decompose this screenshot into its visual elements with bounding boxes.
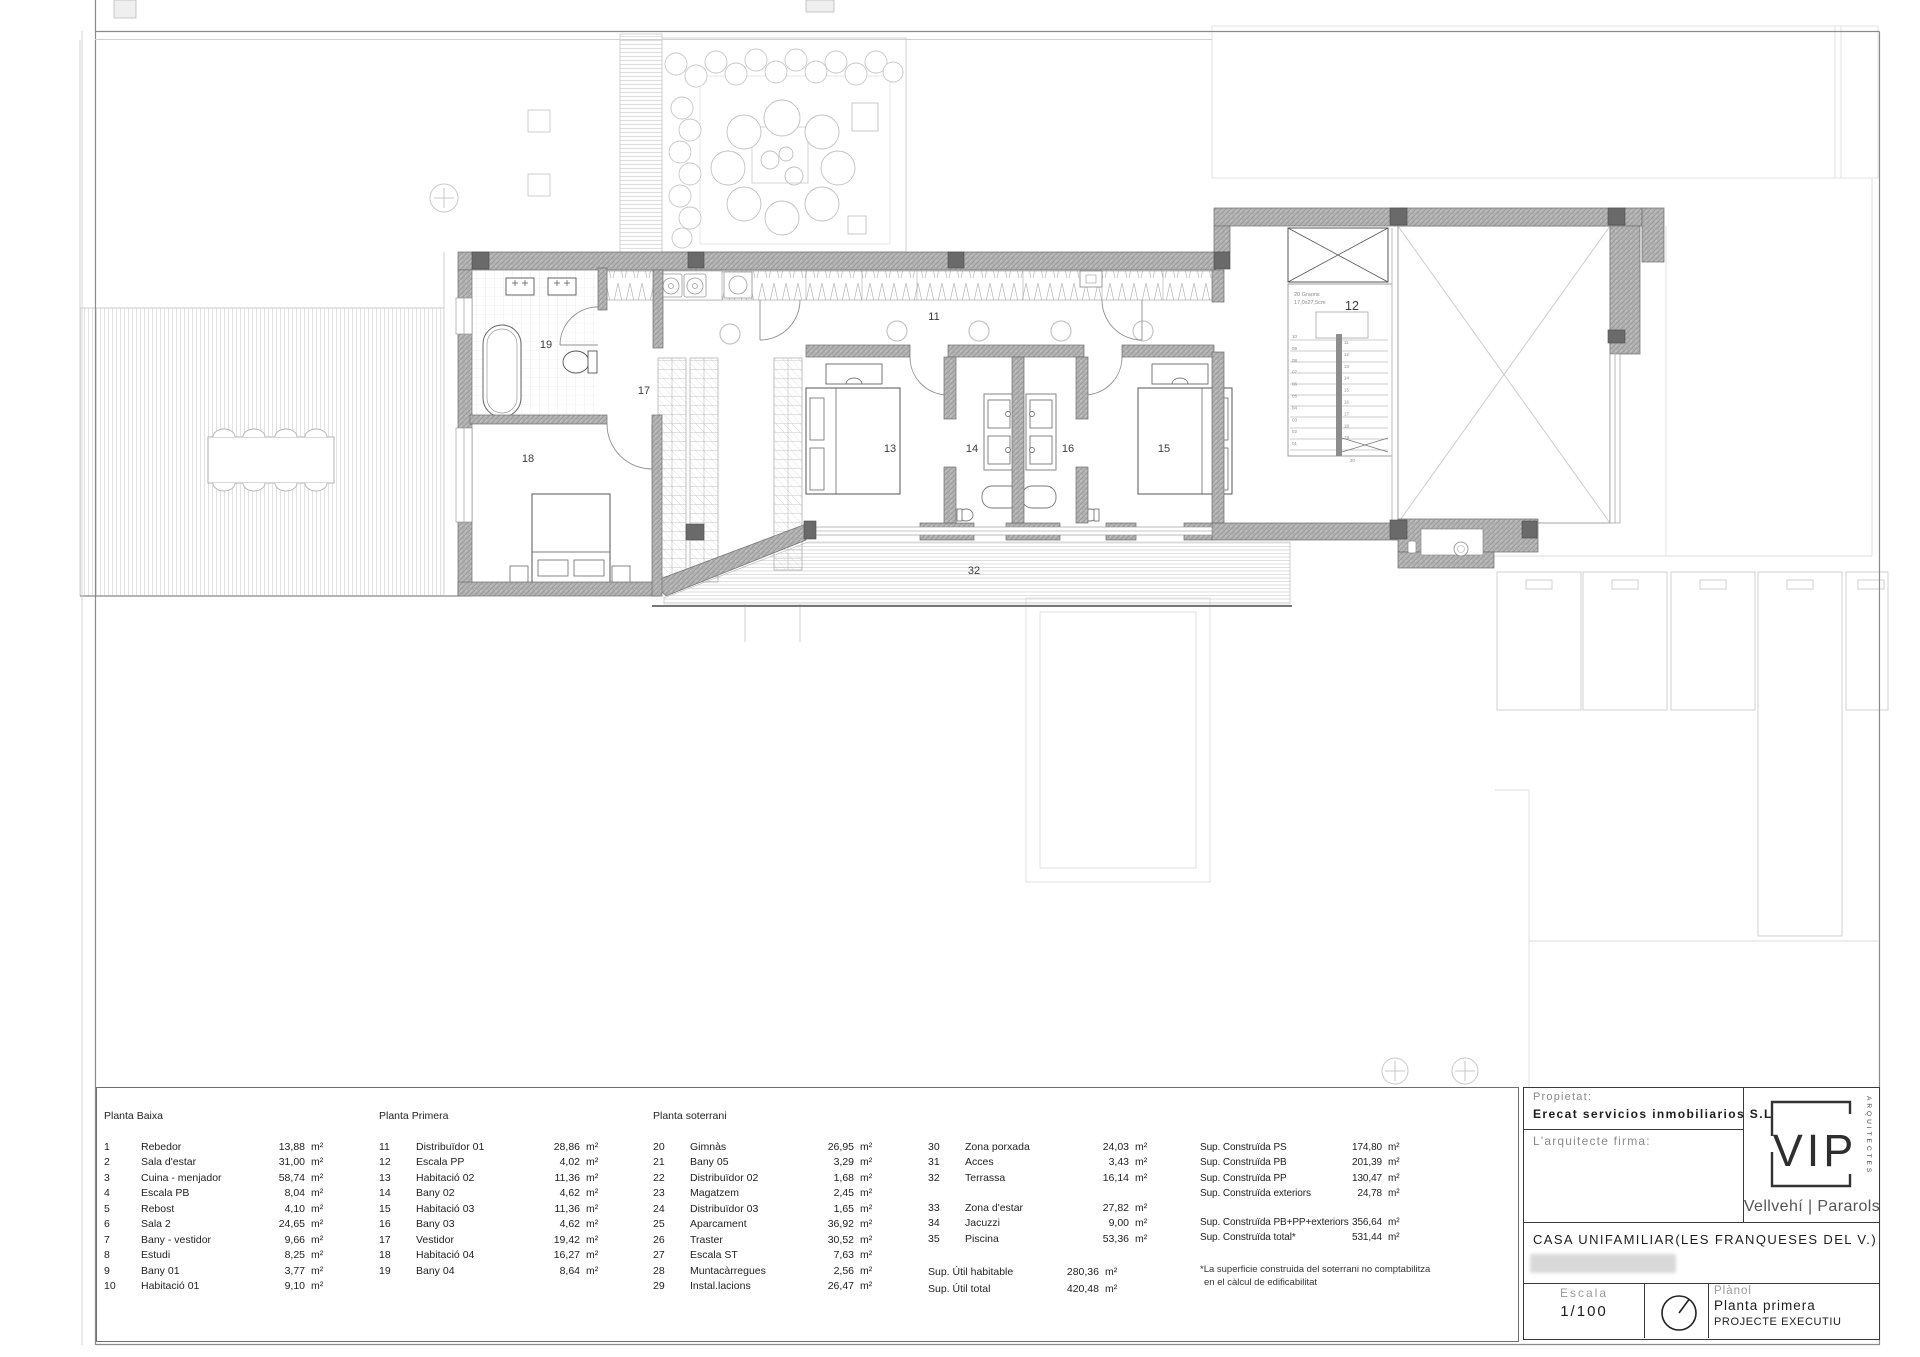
area-unit: m²	[1382, 1155, 1412, 1170]
svg-text:13: 13	[1344, 364, 1350, 369]
room-name: Gimnàs	[690, 1140, 790, 1155]
surface-area: 356,64	[1340, 1215, 1382, 1230]
closet-strip	[607, 271, 1214, 300]
legend-rows: 11 Distribuïdor 01 28,86 m² 12 Escala PP…	[379, 1140, 612, 1279]
room-label-16: 16	[1062, 443, 1074, 455]
room-name: Terrassa	[965, 1171, 1065, 1186]
legend-row: 30 Zona porxada 24,03 m²	[928, 1140, 1161, 1155]
title-block: Propietat: Erecat servicios inmobiliario…	[1523, 1087, 1880, 1340]
area-unit: m²	[854, 1202, 886, 1217]
area-unit: m²	[1129, 1155, 1161, 1170]
divider	[1524, 1283, 1879, 1284]
owner-label: Propietat:	[1533, 1091, 1592, 1103]
sheet-phase: PROJECTE EXECUTIU	[1714, 1316, 1842, 1328]
room-area: 26,95	[790, 1140, 854, 1155]
room-number: 34	[928, 1216, 965, 1231]
room-number: 6	[104, 1217, 141, 1232]
area-unit: m²	[1382, 1215, 1412, 1230]
area-unit: m²	[580, 1248, 612, 1263]
bathtub	[483, 325, 521, 417]
stair-tread-20: 20	[1350, 458, 1356, 463]
legend-total-row: Sup. Útil total 420,48 m²	[928, 1281, 1131, 1298]
svg-text:16: 16	[1344, 400, 1350, 405]
area-unit: m²	[580, 1155, 612, 1170]
legend-row: 9 Bany 01 3,77 m²	[104, 1264, 337, 1279]
room-area: 28,86	[516, 1140, 580, 1155]
area-unit: m²	[305, 1279, 337, 1294]
total-label: Sup. Útil habitable	[928, 1264, 1065, 1281]
stair-note-line1: 20 Graons	[1294, 292, 1320, 298]
scale-value: 1/100	[1524, 1303, 1644, 1320]
room-area: 2,45	[790, 1186, 854, 1201]
area-unit: m²	[305, 1140, 337, 1155]
room-name: Estudi	[141, 1248, 241, 1263]
room-area: 36,92	[790, 1217, 854, 1232]
legend-row: 31 Acces 3,43 m²	[928, 1155, 1161, 1170]
legend-row: 14 Bany 02 4,62 m²	[379, 1186, 612, 1201]
area-unit: m²	[305, 1202, 337, 1217]
project-title: CASA UNIFAMILIAR(LES FRANQUESES DEL V.)	[1533, 1232, 1877, 1247]
room-area: 24,65	[241, 1217, 305, 1232]
room-number: 31	[928, 1155, 965, 1170]
legend-row: 1 Rebedor 13,88 m²	[104, 1140, 337, 1155]
divider	[1524, 1129, 1743, 1130]
room-name: Cuina - menjador	[141, 1171, 241, 1186]
room-name: Traster	[690, 1233, 790, 1248]
room-name: Bany 01	[141, 1264, 241, 1279]
room-label-32: 32	[968, 565, 980, 577]
room-name: Zona porxada	[965, 1140, 1065, 1155]
legend-survey-markers	[1382, 1058, 1478, 1084]
area-unit: m²	[1382, 1230, 1412, 1245]
room-area: 7,63	[790, 1248, 854, 1263]
surface-label: Sup. Construïda PB+PP+exteriors	[1200, 1215, 1340, 1230]
room-label-15: 15	[1158, 443, 1170, 455]
area-unit: m²	[305, 1186, 337, 1201]
room-name: Acces	[965, 1155, 1065, 1170]
room-number: 24	[653, 1202, 690, 1217]
room-number: 35	[928, 1232, 965, 1247]
area-unit: m²	[580, 1217, 612, 1232]
area-unit: m²	[854, 1155, 886, 1170]
total-area: 420,48	[1065, 1281, 1099, 1298]
legend-total-row: Sup. Útil habitable 280,36 m²	[928, 1264, 1131, 1281]
legend-row: 22 Distribuïdor 02 1,68 m²	[653, 1171, 886, 1186]
room-area: 8,25	[241, 1248, 305, 1263]
owner-value: Erecat servicios inmobiliarios S.L	[1533, 1107, 1773, 1121]
legend-row: 25 Aparcament 36,92 m²	[653, 1217, 886, 1232]
room-area: 4,62	[516, 1186, 580, 1201]
room-name: Escala PP	[416, 1155, 516, 1170]
room-area: 3,77	[241, 1264, 305, 1279]
room-area: 4,10	[241, 1202, 305, 1217]
legend-row: 12 Escala PP 4,02 m²	[379, 1155, 612, 1170]
room-number: 22	[653, 1171, 690, 1186]
area-unit: m²	[854, 1279, 886, 1294]
room-name: Habitació 01	[141, 1279, 241, 1294]
area-unit: m²	[1382, 1171, 1412, 1186]
room-name: Bany - vestidor	[141, 1233, 241, 1248]
legend-row: 16 Bany 03 4,62 m²	[379, 1217, 612, 1232]
area-unit: m²	[854, 1171, 886, 1186]
legend-row: 4 Escala PB 8,04 m²	[104, 1186, 337, 1201]
room-area: 9,10	[241, 1279, 305, 1294]
legend-row: 20 Gimnàs 26,95 m²	[653, 1140, 886, 1155]
svg-text:06: 06	[1292, 382, 1298, 387]
bath-14-fixtures	[957, 394, 1020, 521]
room-number: 33	[928, 1201, 965, 1216]
room-name: Habitació 02	[416, 1171, 516, 1186]
legend-rows: 1 Rebedor 13,88 m² 2 Sala d'estar 31,00 …	[104, 1140, 337, 1294]
area-unit: m²	[580, 1171, 612, 1186]
architect-signature-label: L'arquitecte firma:	[1533, 1134, 1651, 1148]
area-unit: m²	[1382, 1186, 1412, 1201]
room-area: 16,27	[516, 1248, 580, 1263]
room-number: 30	[928, 1140, 965, 1155]
room-name: Bany 02	[416, 1186, 516, 1201]
room-name: Sala 2	[141, 1217, 241, 1232]
room-number: 4	[104, 1186, 141, 1201]
svg-text:14: 14	[1344, 376, 1350, 381]
area-unit: m²	[1129, 1216, 1161, 1231]
dining-table	[208, 429, 334, 491]
room-area: 11,36	[516, 1171, 580, 1186]
area-unit: m²	[305, 1217, 337, 1232]
legend-row: 28 Muntacàrregues 2,56 m²	[653, 1264, 886, 1279]
room-area: 31,00	[241, 1155, 305, 1170]
divider	[1708, 1283, 1709, 1338]
room-number: 28	[653, 1264, 690, 1279]
area-unit: m²	[1129, 1232, 1161, 1247]
surface-label: Sup. Construïda total*	[1200, 1230, 1340, 1245]
corridor-lights	[720, 321, 1153, 344]
drawing-sheet: 11 12 13 14 15 16 17 18 19 32 20 Graons …	[0, 0, 1920, 1357]
surface-area: 531,44	[1340, 1230, 1382, 1245]
legend-row: 35 Piscina 53,36 m²	[928, 1232, 1161, 1247]
legend-row: 33 Zona d'estar 27,82 m²	[928, 1201, 1161, 1216]
room-area: 4,62	[516, 1217, 580, 1232]
legend-row: 8 Estudi 8,25 m²	[104, 1248, 337, 1263]
area-unit: m²	[1129, 1140, 1161, 1155]
svg-text:03: 03	[1292, 417, 1298, 422]
room-label-17: 17	[638, 385, 650, 397]
room-area: 3,43	[1065, 1155, 1129, 1170]
legend-totals: Sup. Útil habitable 280,36 m² Sup. Útil …	[928, 1264, 1131, 1297]
room-name: Aparcament	[690, 1217, 790, 1232]
room-area: 9,00	[1065, 1216, 1129, 1231]
svg-text:08: 08	[1292, 358, 1298, 363]
surface-label: Sup. Construïda exteriors	[1200, 1186, 1340, 1201]
room-area: 24,03	[1065, 1140, 1129, 1155]
legend-row: Sup. Construïda PB 201,39 m²	[1200, 1155, 1412, 1170]
legend-row: 2 Sala d'estar 31,00 m²	[104, 1155, 337, 1170]
total-area: 280,36	[1065, 1264, 1099, 1281]
room-number: 29	[653, 1279, 690, 1294]
scale-label: Escala	[1524, 1286, 1644, 1300]
room-area: 2,56	[790, 1264, 854, 1279]
area-unit: m²	[1382, 1140, 1412, 1155]
room-label-11: 11	[928, 311, 939, 323]
room-name: Bany 03	[416, 1217, 516, 1232]
room-area: 8,64	[516, 1264, 580, 1279]
toilet	[563, 351, 597, 373]
area-unit: m²	[1099, 1281, 1131, 1298]
area-unit: m²	[580, 1140, 612, 1155]
vip-logo-vertical-text: ARQUITECTES	[1865, 1096, 1872, 1196]
svg-text:17: 17	[1344, 411, 1350, 416]
area-unit: m²	[580, 1186, 612, 1201]
room-area: 58,74	[241, 1171, 305, 1186]
svg-text:11: 11	[1344, 340, 1349, 345]
room-area: 11,36	[516, 1202, 580, 1217]
legend-row: Sup. Construïda PB+PP+exteriors 356,64 m…	[1200, 1215, 1412, 1230]
surface-area: 24,78	[1340, 1186, 1382, 1201]
room-number: 9	[104, 1264, 141, 1279]
room-name: Muntacàrregues	[690, 1264, 790, 1279]
room-number: 16	[379, 1217, 416, 1232]
room-area: 30,52	[790, 1233, 854, 1248]
room-number: 32	[928, 1171, 965, 1186]
svg-text:19: 19	[1344, 435, 1350, 440]
legend-rows: Sup. Construïda PB+PP+exteriors 356,64 m…	[1200, 1215, 1412, 1246]
divider	[1644, 1283, 1645, 1338]
room-name: Rebedor	[141, 1140, 241, 1155]
room-name: Jacuzzi	[965, 1216, 1065, 1231]
legend-row: 19 Bany 04 8,64 m²	[379, 1264, 612, 1279]
legend-section-title: Planta soterrani	[653, 1110, 727, 1122]
room-number: 17	[379, 1233, 416, 1248]
area-unit: m²	[854, 1233, 886, 1248]
north-arrow-icon	[1657, 1291, 1701, 1335]
area-unit: m²	[1099, 1264, 1131, 1281]
legend-section-title: Planta Baixa	[104, 1110, 163, 1122]
legend-row: 21 Bany 05 3,29 m²	[653, 1155, 886, 1170]
area-unit: m²	[854, 1264, 886, 1279]
room-name: Escala ST	[690, 1248, 790, 1263]
room-name: Bany 05	[690, 1155, 790, 1170]
garden-terrace	[620, 34, 906, 254]
legend-box: Planta Baixa 1 Rebedor 13,88 m² 2 Sala d…	[96, 1087, 1519, 1342]
legend-row: 26 Traster 30,52 m²	[653, 1233, 886, 1248]
stair-and-voids	[1288, 226, 1610, 523]
surface-area: 130,47	[1340, 1171, 1382, 1186]
svg-text:18: 18	[1344, 423, 1350, 428]
legend-row: Sup. Construïda PP 130,47 m²	[1200, 1171, 1412, 1186]
redacted-text	[1530, 1254, 1676, 1273]
legend-row: Sup. Construïda total* 531,44 m²	[1200, 1230, 1412, 1245]
room-label-19: 19	[540, 339, 552, 351]
legend-row: 13 Habitació 02 11,36 m²	[379, 1171, 612, 1186]
room-area: 27,82	[1065, 1201, 1129, 1216]
room-area: 4,02	[516, 1155, 580, 1170]
room-name: Zona d'estar	[965, 1201, 1065, 1216]
legend-rows: 33 Zona d'estar 27,82 m² 34 Jacuzzi 9,00…	[928, 1201, 1161, 1247]
svg-text:02: 02	[1292, 429, 1298, 434]
room-area: 1,68	[790, 1171, 854, 1186]
svg-text:12: 12	[1344, 352, 1350, 357]
room-number: 19	[379, 1264, 416, 1279]
legend-rows: 30 Zona porxada 24,03 m² 31 Acces 3,43 m…	[928, 1140, 1161, 1186]
legend-row: 10 Habitació 01 9,10 m²	[104, 1279, 337, 1294]
legend-rows: 20 Gimnàs 26,95 m² 21 Bany 05 3,29 m² 22…	[653, 1140, 886, 1294]
room-number: 12	[379, 1155, 416, 1170]
surface-label: Sup. Construïda PB	[1200, 1155, 1340, 1170]
svg-text:09: 09	[1292, 346, 1298, 351]
area-unit: m²	[580, 1233, 612, 1248]
area-unit: m²	[305, 1264, 337, 1279]
area-unit: m²	[854, 1248, 886, 1263]
room-number: 10	[104, 1279, 141, 1294]
room-number: 21	[653, 1155, 690, 1170]
surface-label: Sup. Construïda PP	[1200, 1171, 1340, 1186]
room-number: 20	[653, 1140, 690, 1155]
legend-row: 29 Instal.lacions 26,47 m²	[653, 1279, 886, 1294]
area-unit: m²	[1129, 1201, 1161, 1216]
room-area: 19,42	[516, 1233, 580, 1248]
room-name: Distribuïdor 02	[690, 1171, 790, 1186]
legend-footnote-2: en el càlcul de edificabilitat	[1204, 1277, 1317, 1288]
room-name: Distribuïdor 03	[690, 1202, 790, 1217]
room-area: 13,88	[241, 1140, 305, 1155]
room-area: 3,29	[790, 1155, 854, 1170]
sheet-name: Planta primera	[1714, 1298, 1816, 1313]
room-name: Instal.lacions	[690, 1279, 790, 1294]
stair-note-line2: 17,0x27,5cm	[1294, 300, 1326, 306]
room-number: 8	[104, 1248, 141, 1263]
area-unit: m²	[854, 1217, 886, 1232]
room-number: 3	[104, 1171, 141, 1186]
room-number: 7	[104, 1233, 141, 1248]
legend-row: 6 Sala 2 24,65 m²	[104, 1217, 337, 1232]
room-area: 16,14	[1065, 1171, 1129, 1186]
room-number: 5	[104, 1202, 141, 1217]
legend-row: 34 Jacuzzi 9,00 m²	[928, 1216, 1161, 1231]
legend-row: 11 Distribuïdor 01 28,86 m²	[379, 1140, 612, 1155]
sheet-label: Plànol	[1714, 1285, 1752, 1297]
area-unit: m²	[580, 1202, 612, 1217]
legend-section-title: Planta Primera	[379, 1110, 448, 1122]
room-number: 23	[653, 1186, 690, 1201]
area-unit: m²	[1129, 1171, 1161, 1186]
legend-row: 17 Vestidor 19,42 m²	[379, 1233, 612, 1248]
area-unit: m²	[305, 1155, 337, 1170]
room-area: 26,47	[790, 1279, 854, 1294]
room-name: Sala d'estar	[141, 1155, 241, 1170]
room-label-18: 18	[522, 453, 534, 465]
room-name: Habitació 03	[416, 1202, 516, 1217]
svg-text:15: 15	[1344, 388, 1350, 393]
room-name: Habitació 04	[416, 1248, 516, 1263]
legend-row: 7 Bany - vestidor 9,66 m²	[104, 1233, 337, 1248]
legend-row: 18 Habitació 04 16,27 m²	[379, 1248, 612, 1263]
area-unit: m²	[854, 1186, 886, 1201]
svg-text:01: 01	[1292, 441, 1298, 446]
room-number: 2	[104, 1155, 141, 1170]
room-area: 53,36	[1065, 1232, 1129, 1247]
legend-row: 23 Magatzem 2,45 m²	[653, 1186, 886, 1201]
room-area: 1,65	[790, 1202, 854, 1217]
room-area: 9,66	[241, 1233, 305, 1248]
room-name: Magatzem	[690, 1186, 790, 1201]
legend-row: 32 Terrassa 16,14 m²	[928, 1171, 1161, 1186]
room-label-13: 13	[884, 443, 896, 455]
legend-row: 24 Distribuïdor 03 1,65 m²	[653, 1202, 886, 1217]
legend-row: 27 Escala ST 7,63 m²	[653, 1248, 886, 1263]
bed-13	[806, 364, 900, 494]
stair-tread-numbers-right: 111213141516171819	[1344, 340, 1350, 440]
room-name: Piscina	[965, 1232, 1065, 1247]
vip-logo-text: VIP	[1760, 1128, 1870, 1173]
room-number: 15	[379, 1202, 416, 1217]
room-name: Rebost	[141, 1202, 241, 1217]
area-unit: m²	[854, 1140, 886, 1155]
stair-rail	[1336, 334, 1342, 456]
area-unit: m²	[305, 1248, 337, 1263]
surface-label: Sup. Construïda PS	[1200, 1140, 1340, 1155]
legend-row: Sup. Construïda exteriors 24,78 m²	[1200, 1186, 1412, 1201]
vip-logo-subtitle: Vellvehí | Pararols	[1743, 1198, 1881, 1216]
surface-area: 201,39	[1340, 1155, 1382, 1170]
room-number: 14	[379, 1186, 416, 1201]
room-number: 26	[653, 1233, 690, 1248]
room-number: 1	[104, 1140, 141, 1155]
divider	[1524, 1222, 1879, 1223]
legend-row: 3 Cuina - menjador 58,74 m²	[104, 1171, 337, 1186]
room-number: 25	[653, 1217, 690, 1232]
svg-text:04: 04	[1292, 405, 1298, 410]
room-label-14: 14	[966, 443, 978, 455]
area-unit: m²	[305, 1171, 337, 1186]
room-name: Bany 04	[416, 1264, 516, 1279]
legend-row: 5 Rebost 4,10 m²	[104, 1202, 337, 1217]
room-name: Escala PB	[141, 1186, 241, 1201]
room-area: 8,04	[241, 1186, 305, 1201]
bed-18	[510, 494, 630, 584]
area-unit: m²	[305, 1233, 337, 1248]
room-number: 27	[653, 1248, 690, 1263]
room-number: 11	[379, 1140, 416, 1155]
total-label: Sup. Útil total	[928, 1281, 1065, 1298]
svg-text:07: 07	[1292, 370, 1298, 375]
room-label-12: 12	[1345, 299, 1359, 313]
legend-footnote-1: *La superficie construida del soterrani …	[1200, 1264, 1430, 1275]
legend-row: 15 Habitació 03 11,36 m²	[379, 1202, 612, 1217]
room-number: 13	[379, 1171, 416, 1186]
room-name: Vestidor	[416, 1233, 516, 1248]
room-number: 18	[379, 1248, 416, 1263]
room-name: Distribuïdor 01	[416, 1140, 516, 1155]
pergola-strip	[620, 34, 662, 254]
svg-text:10: 10	[1292, 334, 1298, 339]
area-unit: m²	[580, 1264, 612, 1279]
surface-area: 174,80	[1340, 1140, 1382, 1155]
legend-row: Sup. Construïda PS 174,80 m²	[1200, 1140, 1412, 1155]
legend-rows: Sup. Construïda PS 174,80 m² Sup. Constr…	[1200, 1140, 1412, 1202]
svg-text:05: 05	[1292, 394, 1298, 399]
